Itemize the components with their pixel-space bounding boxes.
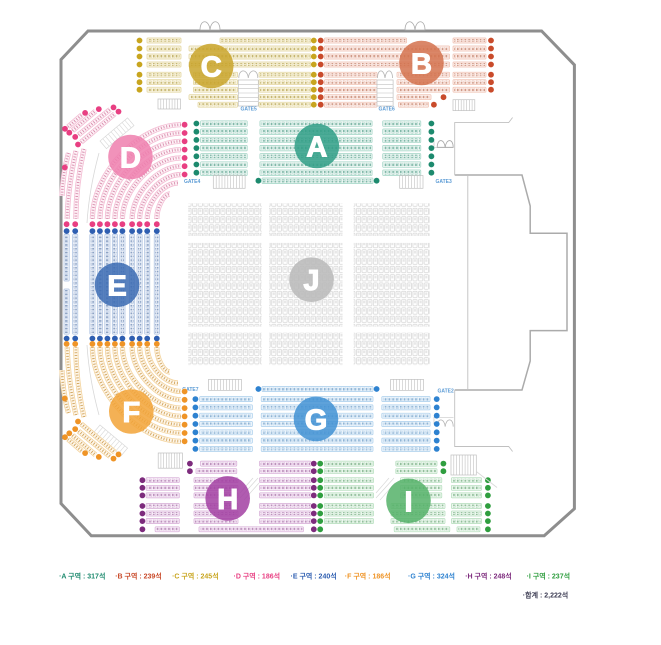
svg-text:J: J — [303, 265, 319, 297]
svg-text:·F 구역 : 186석: ·F 구역 : 186석 — [345, 571, 391, 580]
svg-text:C: C — [201, 52, 222, 84]
svg-text:I: I — [404, 486, 412, 518]
svg-text:A: A — [306, 132, 327, 164]
svg-text:·A 구역 : 317석: ·A 구역 : 317석 — [59, 571, 105, 580]
svg-text:GATE5: GATE5 — [241, 107, 258, 113]
svg-text:GATE4: GATE4 — [184, 179, 201, 185]
svg-text:G: G — [305, 404, 328, 436]
svg-text:·G 구역 : 324석: ·G 구역 : 324석 — [408, 571, 455, 580]
svg-text:·H 구역 : 248석: ·H 구역 : 248석 — [465, 571, 512, 580]
svg-text:·E 구역 : 240석: ·E 구역 : 240석 — [291, 571, 337, 580]
svg-text:GATE6: GATE6 — [379, 107, 396, 113]
svg-text:·D 구역 : 186석: ·D 구역 : 186석 — [234, 571, 281, 580]
svg-text:B: B — [411, 49, 432, 81]
svg-text:·합계 : 2,222석: ·합계 : 2,222석 — [523, 590, 568, 599]
svg-text:GATE3: GATE3 — [436, 179, 453, 185]
svg-text:·B 구역 : 239석: ·B 구역 : 239석 — [115, 571, 162, 580]
svg-text:F: F — [122, 397, 140, 429]
svg-text:H: H — [217, 484, 238, 516]
svg-text:D: D — [120, 143, 141, 175]
svg-text:GATE2: GATE2 — [438, 389, 455, 395]
svg-text:E: E — [107, 270, 126, 302]
svg-text:·C 구역 : 245석: ·C 구역 : 245석 — [172, 571, 219, 580]
svg-text:·I 구역 : 237석: ·I 구역 : 237석 — [527, 571, 570, 580]
